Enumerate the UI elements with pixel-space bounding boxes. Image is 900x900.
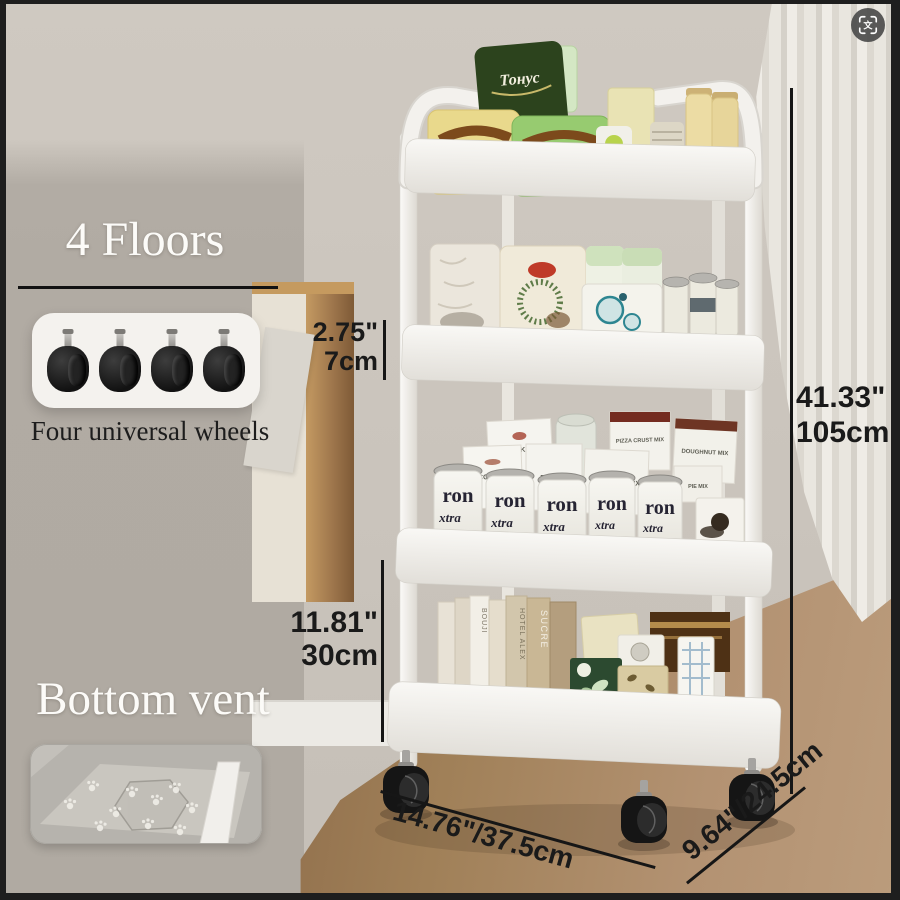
teal-label-pack	[582, 284, 662, 336]
image-translate-icon: 文	[857, 14, 879, 36]
tier1-basket	[404, 138, 755, 201]
caster-wheel-photo	[46, 330, 90, 402]
cart-left-leg	[400, 130, 417, 770]
book-spine-label: HOTEL ALEX	[518, 608, 525, 661]
book-spine-label: BOUJI	[480, 608, 487, 634]
floors-underline	[18, 286, 278, 289]
snack-bag-script: Тонус	[499, 69, 541, 89]
height-dimension-label: 41.33" 105cm	[796, 380, 896, 450]
tier-gap-cm: 7cm	[230, 347, 378, 376]
can-label: ron	[645, 497, 675, 519]
tier-gap-inches: 2.75"	[230, 318, 378, 347]
can-label: ron	[546, 492, 577, 516]
can-label: xtra	[490, 515, 513, 530]
can-label: ron	[494, 488, 525, 512]
translate-glyph: 文	[863, 20, 873, 32]
can: ron xtra	[638, 475, 682, 546]
image-translate-button[interactable]: 文	[851, 8, 885, 42]
mix-box-label: PIE MIX	[688, 484, 708, 490]
wheels-caption: Four universal wheels	[8, 416, 292, 447]
can-label: xtra	[438, 510, 461, 525]
blue-carton	[678, 637, 714, 701]
height-inches: 41.33"	[796, 380, 896, 415]
image-frame-right	[891, 0, 900, 900]
can-label: xtra	[642, 521, 663, 535]
floors-title: 4 Floors	[20, 212, 270, 267]
tier-gap-dimension-line	[383, 320, 386, 380]
bottom-gap-dimension-line	[381, 560, 384, 742]
caster-wheel-photo	[98, 330, 142, 402]
wreath-print-bag	[500, 246, 586, 336]
can-label: xtra	[594, 518, 615, 532]
height-cm: 105cm	[796, 415, 896, 450]
third-shelf-items: PANCAKE MIX PIZZA CRUST MIX DOUGHNUT MIX…	[434, 412, 744, 550]
bottom-gap-dimension-label: 11.81" 30cm	[210, 606, 378, 672]
glass-jars	[663, 273, 739, 336]
can-label: ron	[442, 483, 473, 507]
image-frame-top	[0, 0, 900, 4]
cart-right-leg	[745, 128, 762, 774]
second-shelf-items	[430, 244, 739, 336]
bottom-gap-cm: 30cm	[210, 639, 378, 672]
image-frame-bottom	[0, 893, 900, 900]
image-frame-left	[0, 0, 6, 900]
tier-gap-dimension-label: 2.75" 7cm	[230, 318, 378, 376]
tier2-basket	[401, 324, 765, 390]
can-label: xtra	[542, 519, 565, 534]
height-dimension-line	[790, 88, 793, 794]
vent-inset-panel	[30, 744, 262, 844]
can: ron xtra	[589, 471, 635, 546]
crinkled-bag	[430, 244, 500, 334]
rolling-cart: Тонус	[360, 30, 800, 880]
book-spine-label: SUCRE	[539, 610, 549, 649]
caster-wheel-photo	[150, 330, 194, 402]
vent-title: Bottom vent	[16, 672, 290, 726]
product-image: Тонус	[0, 0, 900, 900]
bottom-gap-inches: 11.81"	[210, 606, 378, 639]
can-label: ron	[597, 493, 627, 515]
wheels-inset-panel	[32, 313, 260, 408]
